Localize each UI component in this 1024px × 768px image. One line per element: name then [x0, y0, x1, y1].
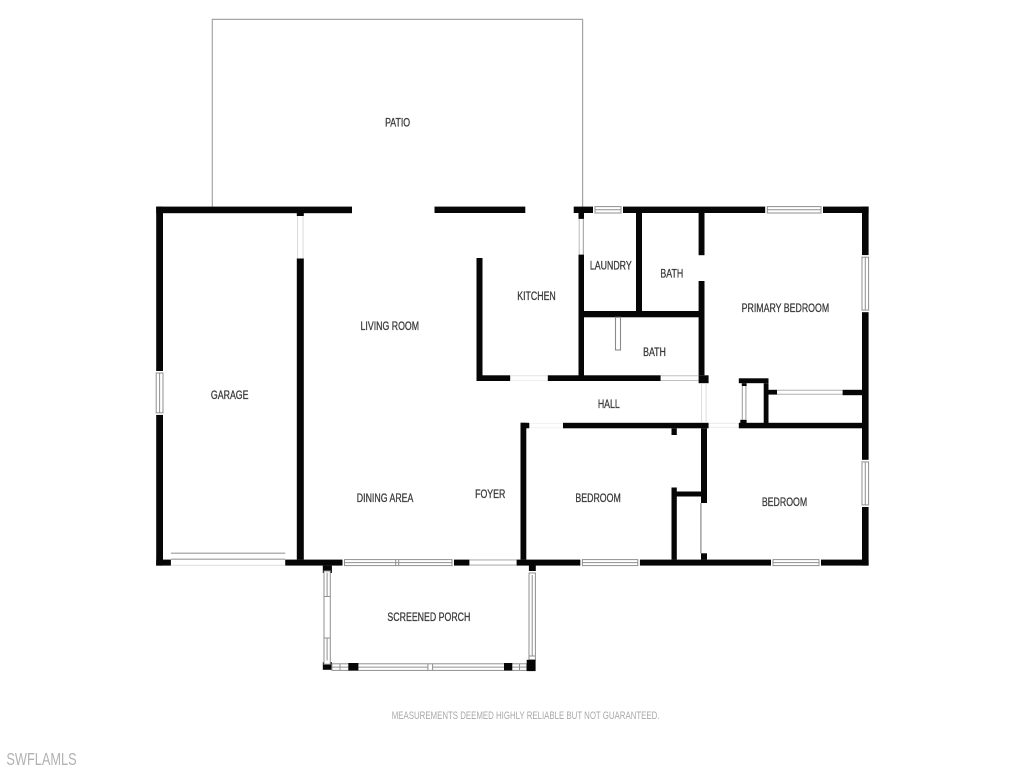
svg-text:BEDROOM: BEDROOM [575, 492, 620, 506]
svg-text:DINING AREA: DINING AREA [357, 492, 414, 506]
svg-text:PATIO: PATIO [385, 116, 410, 130]
svg-text:BATH: BATH [660, 267, 683, 281]
svg-text:LAUNDRY: LAUNDRY [590, 259, 632, 273]
svg-text:GARAGE: GARAGE [211, 388, 249, 402]
svg-text:BATH: BATH [643, 346, 666, 360]
svg-text:LIVING ROOM: LIVING ROOM [361, 320, 420, 334]
svg-text:BEDROOM: BEDROOM [762, 496, 807, 510]
svg-text:SWFLAMLS: SWFLAMLS [6, 750, 76, 768]
svg-text:SCREENED PORCH: SCREENED PORCH [387, 611, 470, 625]
svg-text:HALL: HALL [598, 398, 620, 412]
svg-text:FOYER: FOYER [475, 488, 506, 502]
svg-text:PRIMARY BEDROOM: PRIMARY BEDROOM [742, 302, 830, 316]
svg-text:KITCHEN: KITCHEN [517, 290, 556, 304]
svg-text:MEASUREMENTS DEEMED HIGHLY REL: MEASUREMENTS DEEMED HIGHLY RELIABLE BUT … [392, 710, 660, 723]
